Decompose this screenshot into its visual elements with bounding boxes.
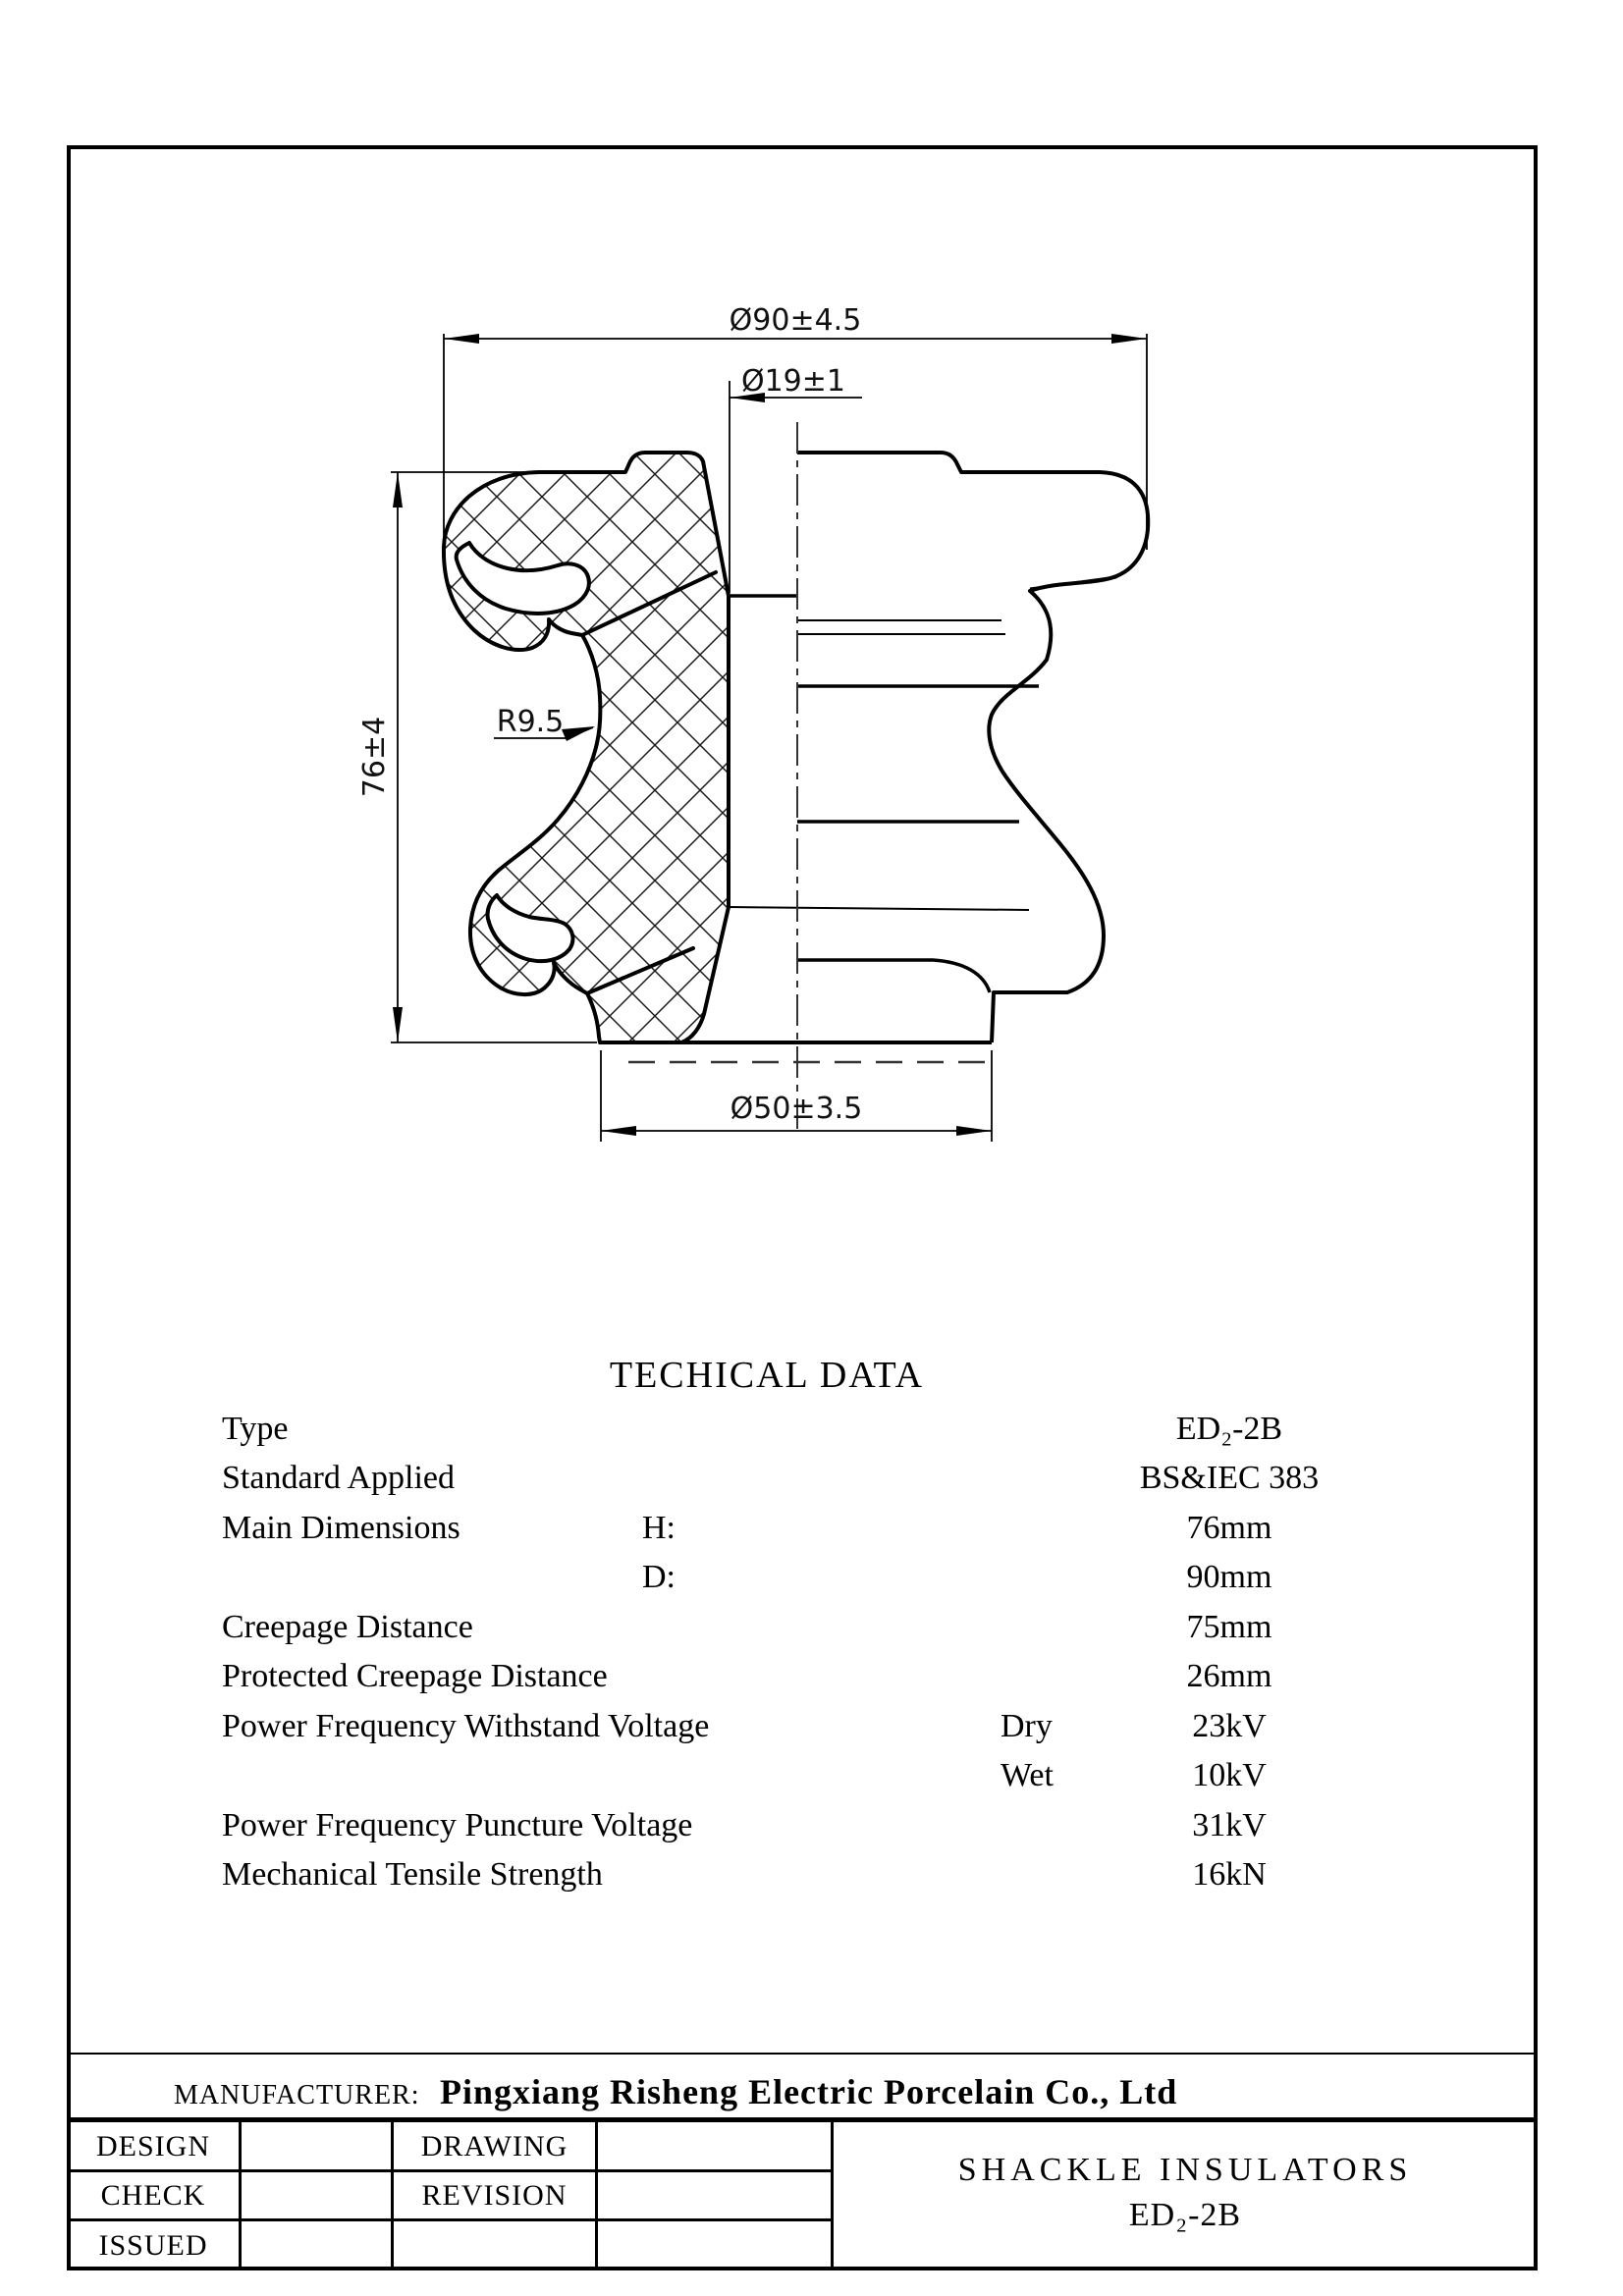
tech-data-row: Protected Creepage Distance26mm bbox=[0, 1658, 1623, 1697]
hole-shoulder-lower bbox=[729, 907, 1029, 910]
titleblock-line bbox=[595, 2122, 598, 2270]
tech-row-value: 75mm bbox=[1023, 1609, 1435, 1646]
manufacturer-label: MANUFACTURER: bbox=[174, 2080, 420, 2111]
insulator-section-left bbox=[444, 453, 729, 1042]
drawing-sheet: Ø90±4.5 Ø19±1 76±4 R9.5 Ø50±3.5 TECHICAL bbox=[0, 0, 1623, 2296]
insulator-view-right bbox=[797, 453, 1148, 1042]
tech-data-title: TECHICAL DATA bbox=[472, 1354, 1061, 1397]
tech-row-value: 10kV bbox=[1023, 1757, 1435, 1794]
tech-row-sublabel: H: bbox=[642, 1510, 676, 1547]
tech-row-value: ED₂-2B bbox=[1023, 1411, 1435, 1448]
tech-data-row: D:90mm bbox=[0, 1559, 1623, 1598]
revision-cell: REVISION bbox=[394, 2172, 595, 2218]
tech-row-label: Main Dimensions bbox=[222, 1510, 460, 1547]
tech-row-value: 26mm bbox=[1023, 1658, 1435, 1695]
dimension-top-diameter-label: Ø90±4.5 bbox=[730, 303, 862, 338]
insulator-technical-drawing: Ø90±4.5 Ø19±1 76±4 R9.5 Ø50±3.5 bbox=[0, 0, 1623, 2296]
shed-underside-edge bbox=[1030, 577, 1116, 589]
drawing-cell: DRAWING bbox=[394, 2123, 595, 2169]
tech-data-row: Mechanical Tensile Strength16kN bbox=[0, 1856, 1623, 1896]
tech-data-row: Creepage Distance75mm bbox=[0, 1609, 1623, 1648]
tech-data-row: Main DimensionsH:76mm bbox=[0, 1510, 1623, 1549]
tech-row-value: 16kN bbox=[1023, 1856, 1435, 1894]
issued-cell: ISSUED bbox=[67, 2221, 240, 2270]
tech-data-row: Power Frequency Withstand VoltageDry23kV bbox=[0, 1708, 1623, 1747]
tech-row-label: Creepage Distance bbox=[222, 1609, 473, 1646]
tech-row-label: Type bbox=[222, 1411, 289, 1448]
tech-row-label: Power Frequency Puncture Voltage bbox=[222, 1807, 692, 1844]
tech-row-value: BS&IEC 383 bbox=[1023, 1460, 1435, 1497]
tech-data-row: TypeED₂-2B bbox=[0, 1411, 1623, 1450]
product-model: ED₂-2B bbox=[833, 2197, 1538, 2234]
dimension-hole-diameter bbox=[730, 381, 862, 593]
check-cell: CHECK bbox=[67, 2172, 240, 2218]
titleblock-line bbox=[67, 2117, 1538, 2122]
base-top-edge bbox=[797, 960, 990, 992]
tech-row-label: Mechanical Tensile Strength bbox=[222, 1856, 603, 1894]
dimension-base-diameter-label: Ø50±3.5 bbox=[730, 1092, 863, 1126]
manufacturer-name: Pingxiang Risheng Electric Porcelain Co.… bbox=[440, 2071, 1177, 2112]
tech-row-label: Protected Creepage Distance bbox=[222, 1658, 608, 1695]
manufacturer-row: MANUFACTURER: Pingxiang Risheng Electric… bbox=[67, 2055, 1538, 2120]
tech-row-value: 90mm bbox=[1023, 1559, 1435, 1596]
tech-row-label: Power Frequency Withstand Voltage bbox=[222, 1708, 709, 1745]
tech-row-label: Standard Applied bbox=[222, 1460, 455, 1497]
tech-row-value: 76mm bbox=[1023, 1510, 1435, 1547]
tech-data-row: Power Frequency Puncture Voltage31kV bbox=[0, 1807, 1623, 1846]
dimension-height-label: 76±4 bbox=[357, 717, 392, 797]
tech-row-value: 31kV bbox=[1023, 1807, 1435, 1844]
tech-data-row: Wet10kV bbox=[0, 1757, 1623, 1796]
product-title: SHACKLE INSULATORS bbox=[833, 2152, 1538, 2189]
tech-row-sublabel: D: bbox=[642, 1559, 676, 1596]
titleblock-line bbox=[67, 2053, 1538, 2055]
dimension-groove-radius-label: R9.5 bbox=[497, 705, 565, 739]
tech-row-value: 23kV bbox=[1023, 1708, 1435, 1745]
tech-data-row: Standard AppliedBS&IEC 383 bbox=[0, 1460, 1623, 1499]
dimension-hole-diameter-label: Ø19±1 bbox=[741, 364, 845, 399]
design-cell: DESIGN bbox=[67, 2123, 240, 2169]
